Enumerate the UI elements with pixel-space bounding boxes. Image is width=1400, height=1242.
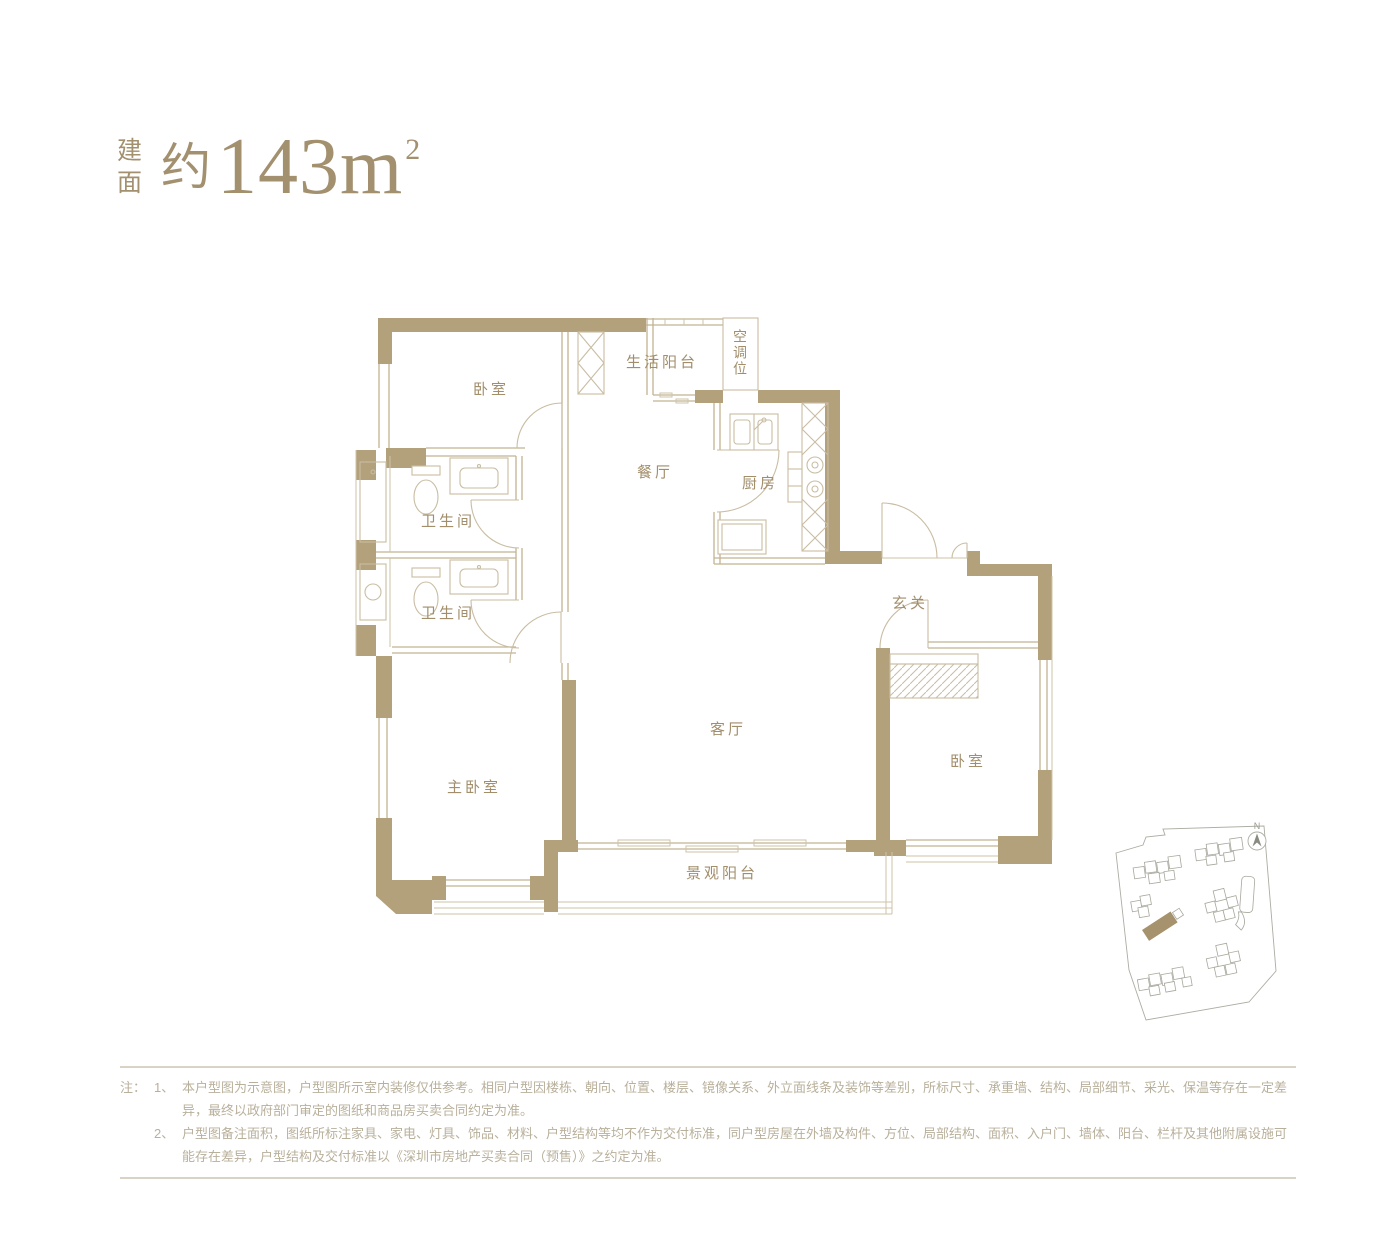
room-label-living-balcony: 生活阳台 (626, 354, 698, 371)
room-label-kitchen: 厨房 (742, 475, 778, 492)
area-number: 143 (217, 123, 340, 211)
compass-north-icon: N (1248, 821, 1266, 850)
area-approx-label: 约 (161, 142, 211, 192)
room-label-master-bedroom: 主卧室 (447, 779, 501, 796)
floor-plan-room-labels: 卧室 生活阳台 空调位 餐厅 厨房 卫生间 卫生间 玄关 主卧室 客厅 卧室 景… (421, 329, 986, 882)
disclaimer-notes: 注： 1、 本户型图为示意图，户型图所示室内装修仅供参考。相同户型因楼栋、朝向、… (120, 1066, 1296, 1179)
area-title-stacked-label: 建面 (116, 135, 143, 199)
area-unit: m (340, 123, 403, 211)
room-label-bathroom-2: 卫生间 (421, 605, 475, 622)
note-item-1: 注： 1、 本户型图为示意图，户型图所示室内装修仅供参考。相同户型因楼栋、朝向、… (120, 1076, 1296, 1122)
room-label-foyer: 玄关 (892, 595, 928, 612)
room-label-bedroom-top-left: 卧室 (473, 381, 509, 398)
note-2-text: 户型图备注面积，图纸所标注家具、家电、灯具、饰品、材料、户型结构等均不作为交付标… (182, 1122, 1296, 1168)
note-item-2: 2、 户型图备注面积，图纸所标注家具、家电、灯具、饰品、材料、户型结构等均不作为… (120, 1122, 1296, 1168)
note-1-number: 1、 (154, 1076, 182, 1122)
floor-plan: 卧室 生活阳台 空调位 餐厅 厨房 卫生间 卫生间 玄关 主卧室 客厅 卧室 景… (350, 300, 1060, 950)
note-prefix: 注： (120, 1076, 154, 1122)
room-label-living-room: 客厅 (710, 721, 746, 738)
compass-north-label: N (1254, 821, 1261, 831)
room-label-ac-slot: 空调位 (732, 329, 748, 377)
note-2-number: 2、 (154, 1122, 182, 1168)
room-label-dining: 餐厅 (637, 464, 673, 481)
site-map: N (1106, 820, 1296, 1040)
room-label-bedroom-right: 卧室 (950, 753, 986, 770)
page-canvas: { "header": { "area_label_stacked": "建面"… (0, 0, 1400, 1242)
note-1-text: 本户型图为示意图，户型图所示室内装修仅供参考。相同户型因楼栋、朝向、位置、楼层、… (182, 1076, 1296, 1122)
room-label-bathroom-1: 卫生间 (421, 513, 475, 530)
area-title: 建面 约 143m2 (116, 126, 419, 208)
area-superscript: 2 (405, 133, 421, 166)
area-value: 143m2 (217, 127, 419, 207)
room-label-view-balcony: 景观阳台 (686, 865, 758, 882)
